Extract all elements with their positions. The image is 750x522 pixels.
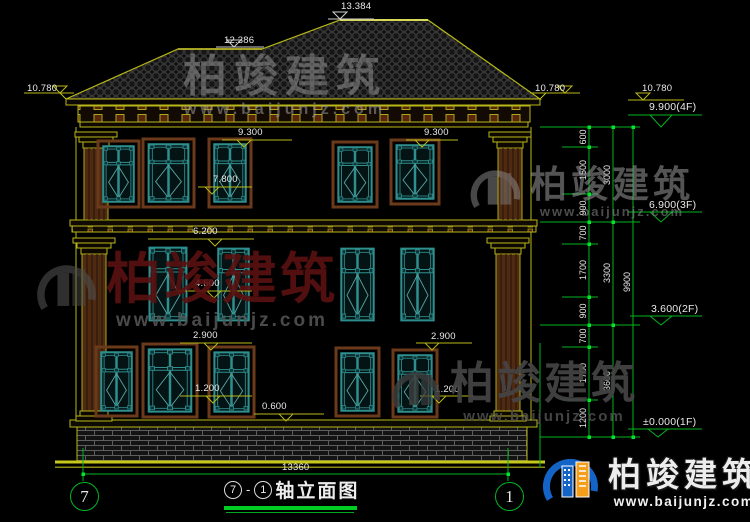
- title-axis-left-circle: 7: [224, 481, 242, 499]
- dim-segment: 1500: [578, 160, 588, 180]
- brand-logo-url: www.baijunjz.com: [614, 495, 750, 509]
- window: [341, 353, 373, 410]
- roof: [66, 20, 540, 99]
- drawing-title: 7 - 1 轴立面图: [224, 476, 359, 513]
- window: [401, 249, 433, 321]
- dim-floor: 3000: [602, 165, 612, 185]
- window: [397, 145, 434, 199]
- level-label-win2-top: 6.200: [193, 226, 218, 237]
- dim-segment: 700: [578, 328, 588, 343]
- window: [149, 144, 189, 201]
- level-label-win1-sill-b: 1.200: [435, 384, 460, 395]
- title-axis-right-circle: 1: [254, 481, 272, 499]
- window: [338, 147, 371, 202]
- level-label-win1-top-b: 2.900: [431, 331, 456, 342]
- window: [101, 352, 132, 410]
- axis-bubble-left-number: 7: [80, 487, 89, 507]
- level-label-ridge2: 12.386: [224, 35, 254, 46]
- dim-segment: 1200: [578, 408, 588, 428]
- title-underline-thin: [226, 512, 354, 514]
- pilaster-right-lower: [487, 238, 529, 421]
- title-underline-thick: [224, 506, 357, 510]
- window: [214, 144, 245, 201]
- dim-label-overall: 13360: [282, 462, 309, 473]
- dim-total: 9900: [622, 272, 632, 292]
- dim-segment: 700: [578, 225, 588, 240]
- level-label-floor1: ±0.000(1F): [643, 416, 696, 428]
- level-label-floor2: 3.600(2F): [651, 303, 698, 315]
- dim-segment: 1700: [578, 260, 588, 280]
- level-label-win3-top-b: 9.300: [424, 127, 449, 138]
- cad-linework: [0, 0, 750, 522]
- window: [341, 249, 373, 321]
- window: [214, 352, 248, 411]
- window: [398, 355, 431, 411]
- level-markers-right: [628, 115, 702, 437]
- title-separator: -: [246, 482, 250, 497]
- level-label-floor3: 6.900(3F): [649, 199, 696, 211]
- level-label-win1-top-a: 2.900: [193, 330, 218, 341]
- dim-floor: 3300: [602, 263, 612, 283]
- dim-segment: 1700: [578, 363, 588, 383]
- level-label-eave-right-a: 10.780: [535, 83, 565, 94]
- level-label-eave-right-b: 10.780: [642, 83, 672, 94]
- title-text: 轴立面图: [275, 476, 359, 503]
- dim-segment: 900: [578, 303, 588, 318]
- level-label-win1-sill-a: 1.200: [195, 383, 220, 394]
- window: [150, 248, 187, 321]
- window: [103, 146, 134, 202]
- level-label-win3-sill: 7.800: [213, 174, 238, 185]
- level-label-ridge: 13.384: [341, 1, 371, 12]
- brand-logo-icon: [540, 452, 600, 514]
- plinth: [55, 420, 545, 467]
- level-label-win3-top-a: 9.300: [238, 127, 263, 138]
- pilaster-right-upper: [489, 132, 531, 220]
- level-label-floor4: 9.900(4F): [649, 101, 696, 113]
- window: [218, 249, 249, 321]
- level-label-plinth: 0.600: [262, 401, 287, 412]
- window: [149, 349, 192, 411]
- axis-bubble-right-number: 1: [505, 487, 514, 507]
- dim-segment: 900: [578, 200, 588, 215]
- level-label-eave-left: 10.780: [27, 83, 57, 94]
- window-surrounds: [96, 139, 439, 417]
- dim-segment: 600: [578, 129, 588, 144]
- brand-logo-text: 柏竣建筑: [608, 458, 750, 491]
- level-label-win2-sill: 4.500: [195, 278, 220, 289]
- axis-bubble-right: 1: [495, 482, 524, 511]
- windows: [101, 144, 433, 411]
- brand-logo: 柏竣建筑 www.baijunjz.com: [540, 452, 750, 514]
- floor-band: [70, 220, 537, 232]
- dim-floor: 3600: [602, 371, 612, 391]
- elevation-drawing-canvas: 13.384 12.386 10.780 10.780 10.780 9.900…: [0, 0, 750, 522]
- axis-bubble-left: 7: [70, 482, 99, 511]
